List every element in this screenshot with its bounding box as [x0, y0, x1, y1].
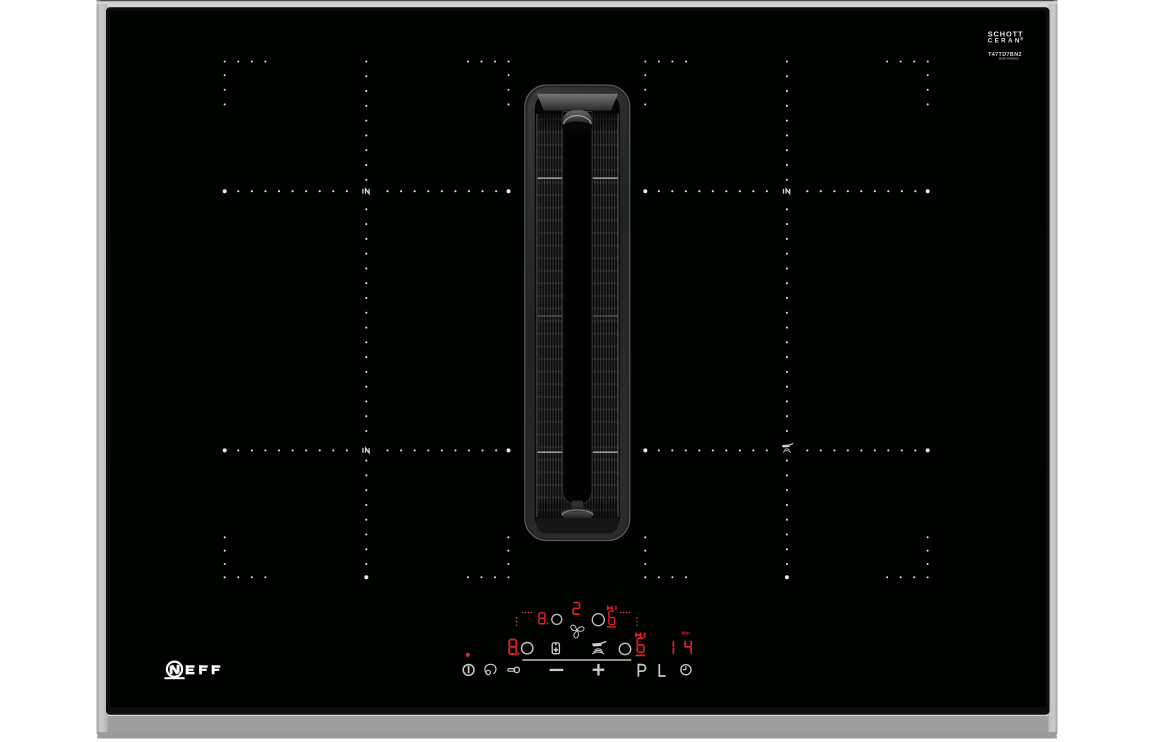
- svg-text:CERAN: CERAN: [988, 38, 1022, 45]
- svg-text:B0B17/62NAZ: B0B17/62NAZ: [999, 57, 1019, 61]
- svg-text:Min: Min: [681, 631, 689, 637]
